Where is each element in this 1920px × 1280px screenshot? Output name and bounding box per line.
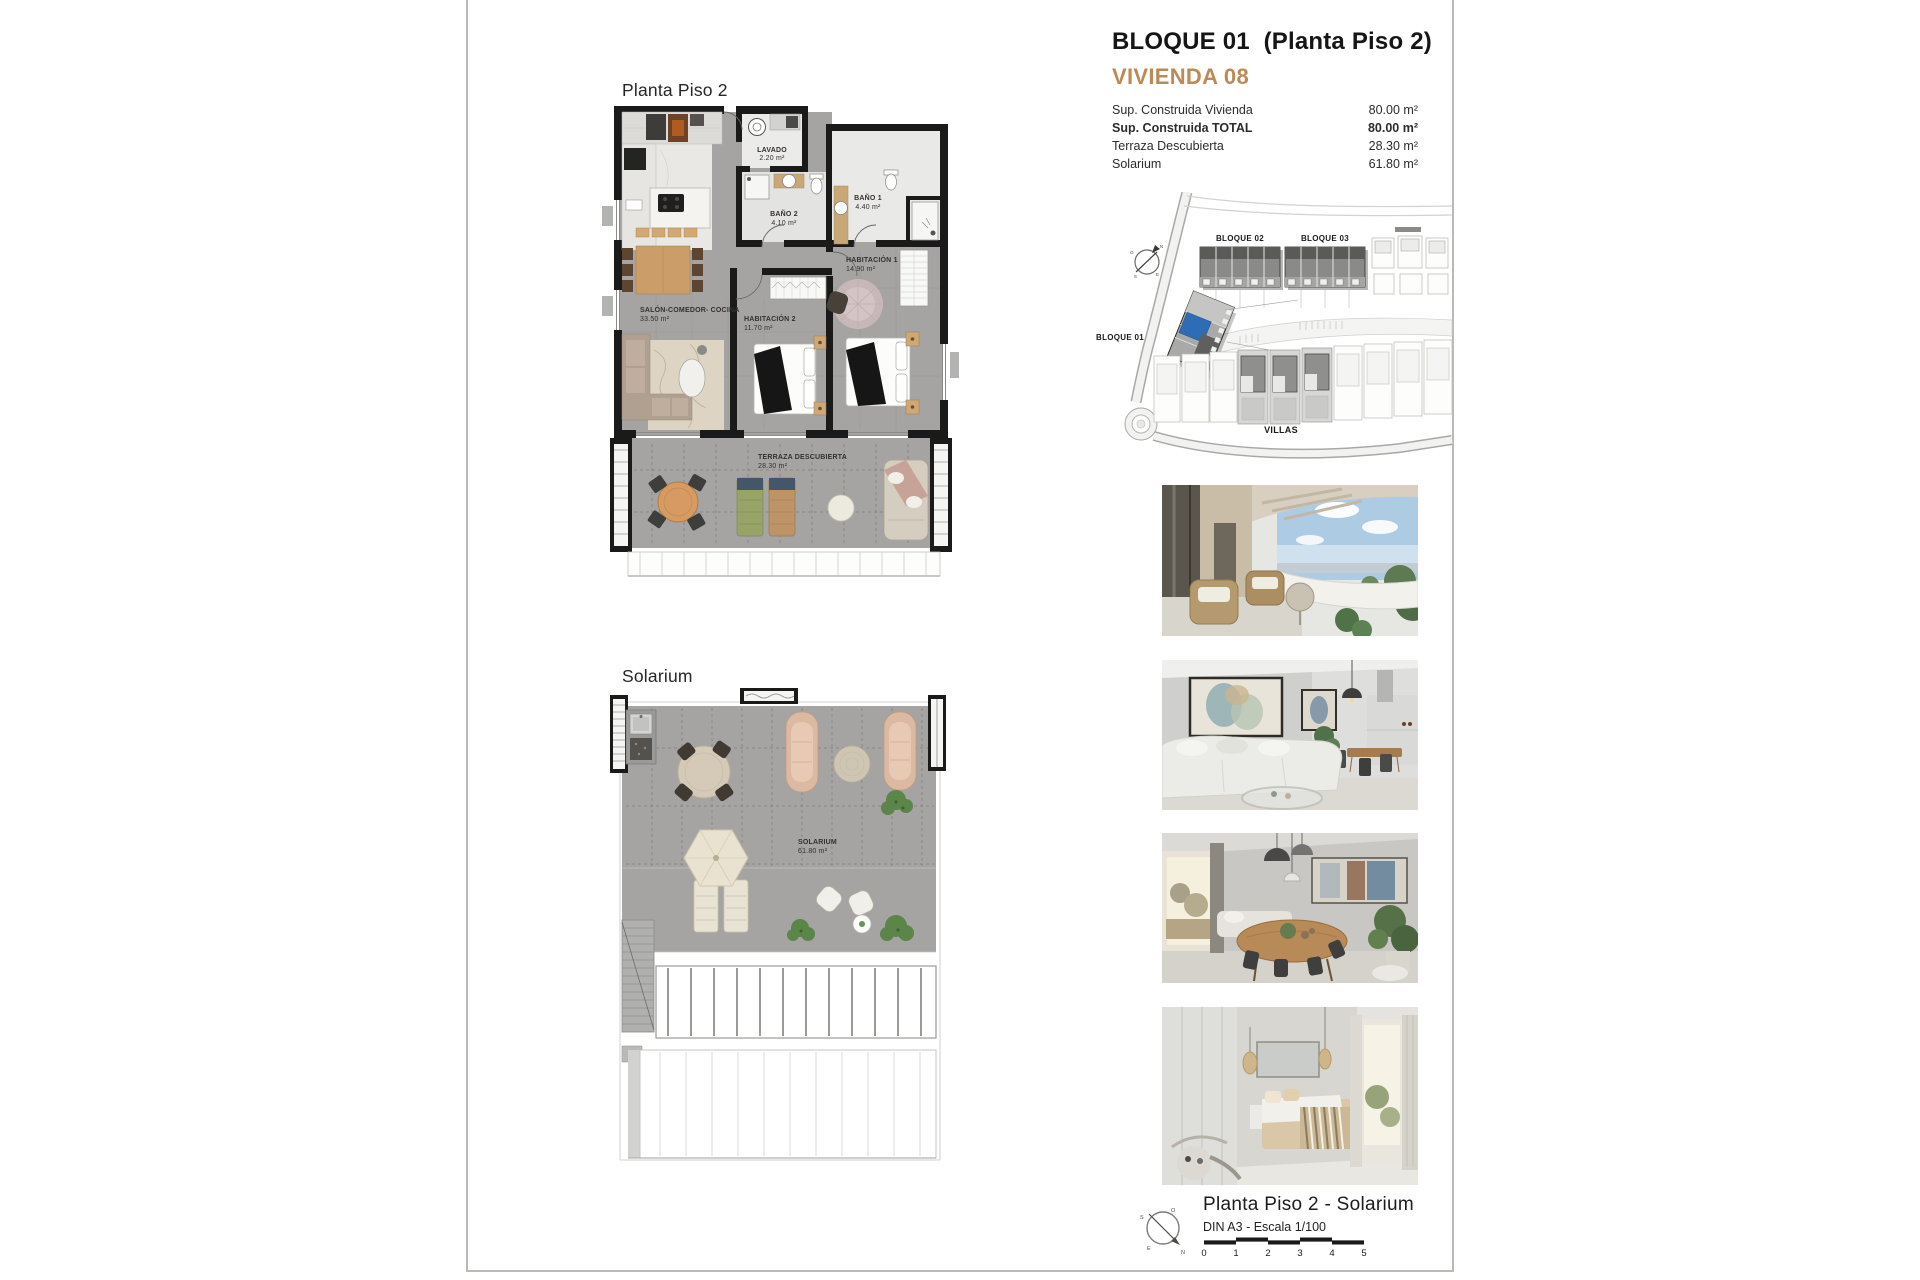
- svg-text:33.50 m²: 33.50 m²: [640, 316, 670, 323]
- svg-text:S: S: [1140, 1215, 1144, 1221]
- titleblock-compass-icon: O S E N: [1138, 1204, 1190, 1256]
- window: [1350, 1015, 1418, 1170]
- living-room: [622, 334, 724, 430]
- svg-text:4: 4: [1329, 1248, 1334, 1259]
- solarium-dining: [673, 739, 734, 802]
- svg-text:E: E: [1147, 1246, 1151, 1252]
- bloque02-label: BLOQUE 02: [1216, 234, 1264, 243]
- svg-text:N: N: [1181, 1250, 1185, 1256]
- pouf: [828, 495, 854, 521]
- bloque03-label: BLOQUE 03: [1301, 234, 1349, 243]
- fridge: [646, 114, 666, 140]
- villas-label: VILLAS: [1264, 425, 1298, 435]
- page-border-left: [466, 0, 468, 1271]
- round-rug: [834, 746, 870, 782]
- terrace-sofa: [884, 460, 928, 540]
- bloque03-building: [1285, 247, 1368, 290]
- wardrobe: [770, 277, 826, 299]
- svg-text:E: E: [1156, 272, 1159, 277]
- surface-value: 61.80 m²: [1369, 157, 1418, 171]
- surface-row: Sup. Construida Vivienda 80.00 m²: [1112, 101, 1418, 119]
- photo-terrace: [1162, 485, 1418, 636]
- coffee-table: [679, 359, 705, 397]
- stairs: [622, 920, 654, 1062]
- surface-value: 28.30 m²: [1369, 139, 1418, 153]
- bloque01-label: BLOQUE 01: [1096, 333, 1144, 342]
- site-compass-icon: N O S E: [1130, 244, 1163, 279]
- mirror: [1257, 1042, 1319, 1077]
- svg-text:S: S: [1134, 274, 1137, 279]
- svg-text:14.90 m²: 14.90 m²: [846, 266, 876, 273]
- room-label: TERRAZA DESCUBIERTA: [758, 454, 847, 461]
- svg-text:61.80 m²: 61.80 m²: [798, 848, 828, 855]
- svg-text:5: 5: [1361, 1248, 1366, 1259]
- sheet-title: BLOQUE 01 (Planta Piso 2): [1112, 28, 1432, 56]
- svg-text:1: 1: [1233, 1248, 1238, 1259]
- surface-table: Sup. Construida Vivienda 80.00 m² Sup. C…: [1112, 101, 1418, 173]
- plan-sheet: BLOQUE 01 (Planta Piso 2) VIVIENDA 08 Su…: [0, 0, 1920, 1280]
- page-border-bottom: [466, 1270, 1454, 1272]
- bed: [1250, 1089, 1352, 1149]
- surface-value: 80.00 m²: [1368, 121, 1418, 135]
- wall-art: [1312, 858, 1407, 903]
- site-plan: N O S E BLOQUE 02 BLOQUE 03 BLOQUE 01 VI…: [1095, 192, 1453, 464]
- plan-piso2-drawing: LAVADO 2.20 m² BAÑO 2 4.10 m² BAÑO 1 4.4…: [598, 96, 962, 584]
- svg-text:28.30 m²: 28.30 m²: [758, 463, 788, 470]
- dining-room-render: [1162, 833, 1418, 983]
- scale-bar: 0 1 2 3 4 5: [1198, 1234, 1378, 1260]
- neighbor-buildings: [1372, 227, 1448, 294]
- unit-title: VIVIENDA 08: [1112, 64, 1249, 90]
- room-label: BAÑO 2: [770, 209, 798, 218]
- bedroom-render: [1162, 1007, 1418, 1185]
- surface-row: Solarium 61.80 m²: [1112, 155, 1418, 173]
- svg-text:3: 3: [1297, 1248, 1302, 1259]
- plan-solarium-drawing: SOLARIUM 61.80 m²: [598, 688, 962, 1180]
- titleblock-title: Planta Piso 2 - Solarium: [1203, 1194, 1414, 1216]
- surface-label: Solarium: [1112, 157, 1161, 171]
- lower-railing: [628, 552, 940, 576]
- villas-highlight: [1238, 348, 1332, 424]
- plan-solarium-title: Solarium: [622, 666, 693, 687]
- surface-label: Terraza Descubierta: [1112, 139, 1224, 153]
- lower-level-outline: [628, 1050, 936, 1158]
- photo-dining-room: [1162, 833, 1418, 983]
- svg-text:0: 0: [1201, 1248, 1206, 1259]
- room-label: LAVADO: [757, 147, 787, 154]
- surface-label: Sup. Construida Vivienda: [1112, 103, 1253, 117]
- photo-living-room: [1162, 660, 1418, 810]
- svg-text:2: 2: [1265, 1248, 1270, 1259]
- surface-value: 80.00 m²: [1369, 103, 1418, 117]
- surface-label: Sup. Construida TOTAL: [1112, 121, 1253, 135]
- room-label: BAÑO 1: [854, 193, 882, 202]
- room-label: HABITACIÓN 1: [846, 255, 898, 264]
- room-label: HABITACIÓN 2: [744, 314, 796, 323]
- photo-bedroom: [1162, 1007, 1418, 1185]
- svg-text:N: N: [1160, 244, 1163, 249]
- living-room-render: [1162, 660, 1418, 810]
- solarium-railing: [656, 966, 936, 1038]
- plot-ticks: [1216, 289, 1349, 308]
- page-border-right: [1452, 0, 1454, 1271]
- svg-text:SOLARIUM: SOLARIUM: [798, 839, 837, 846]
- svg-text:O: O: [1130, 250, 1134, 255]
- svg-text:O: O: [1171, 1208, 1176, 1214]
- titleblock-scale-note: DIN A3 - Escala 1/100: [1203, 1220, 1326, 1234]
- surface-row: Terraza Descubierta 28.30 m²: [1112, 137, 1418, 155]
- svg-text:2.20 m²: 2.20 m²: [759, 155, 785, 162]
- svg-text:11.70 m²: 11.70 m²: [744, 325, 773, 332]
- terrace-render: [1162, 485, 1418, 636]
- svg-text:4.40 m²: 4.40 m²: [855, 204, 881, 211]
- bloque02-building: [1200, 247, 1283, 290]
- surface-row: Sup. Construida TOTAL 80.00 m²: [1112, 119, 1418, 137]
- room-label: SALÓN-COMEDOR- COCINA: [640, 305, 739, 314]
- svg-text:4.10 m²: 4.10 m²: [771, 220, 797, 227]
- solarium-sink-unit: [626, 710, 656, 764]
- sofa: [1162, 736, 1342, 798]
